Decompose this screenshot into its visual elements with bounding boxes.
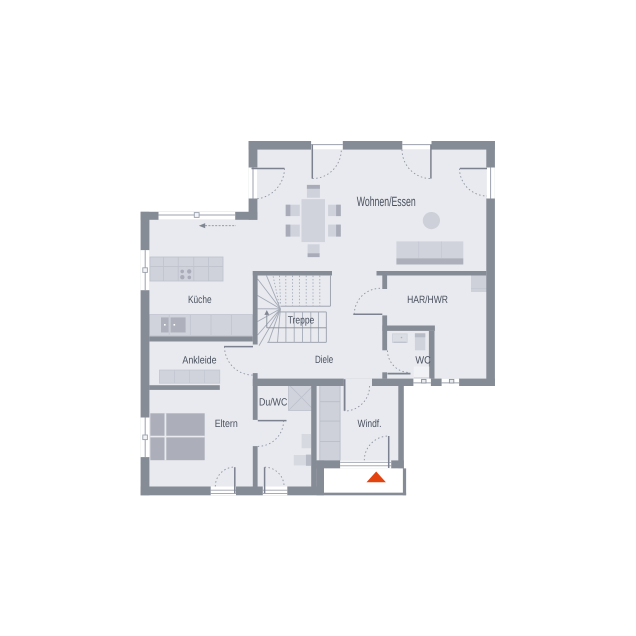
- svg-text:Windf.: Windf.: [358, 418, 382, 430]
- svg-text:WC: WC: [415, 355, 431, 367]
- svg-text:Wohnen/Essen: Wohnen/Essen: [357, 194, 416, 209]
- svg-text:Ankleide: Ankleide: [182, 355, 216, 367]
- svg-text:Diele: Diele: [315, 354, 333, 366]
- svg-text:Eltern: Eltern: [215, 418, 238, 430]
- svg-text:Du/WC: Du/WC: [259, 397, 288, 409]
- svg-text:HAR/HWR: HAR/HWR: [407, 294, 448, 306]
- svg-text:Küche: Küche: [188, 294, 212, 306]
- svg-text:Treppe: Treppe: [288, 314, 315, 326]
